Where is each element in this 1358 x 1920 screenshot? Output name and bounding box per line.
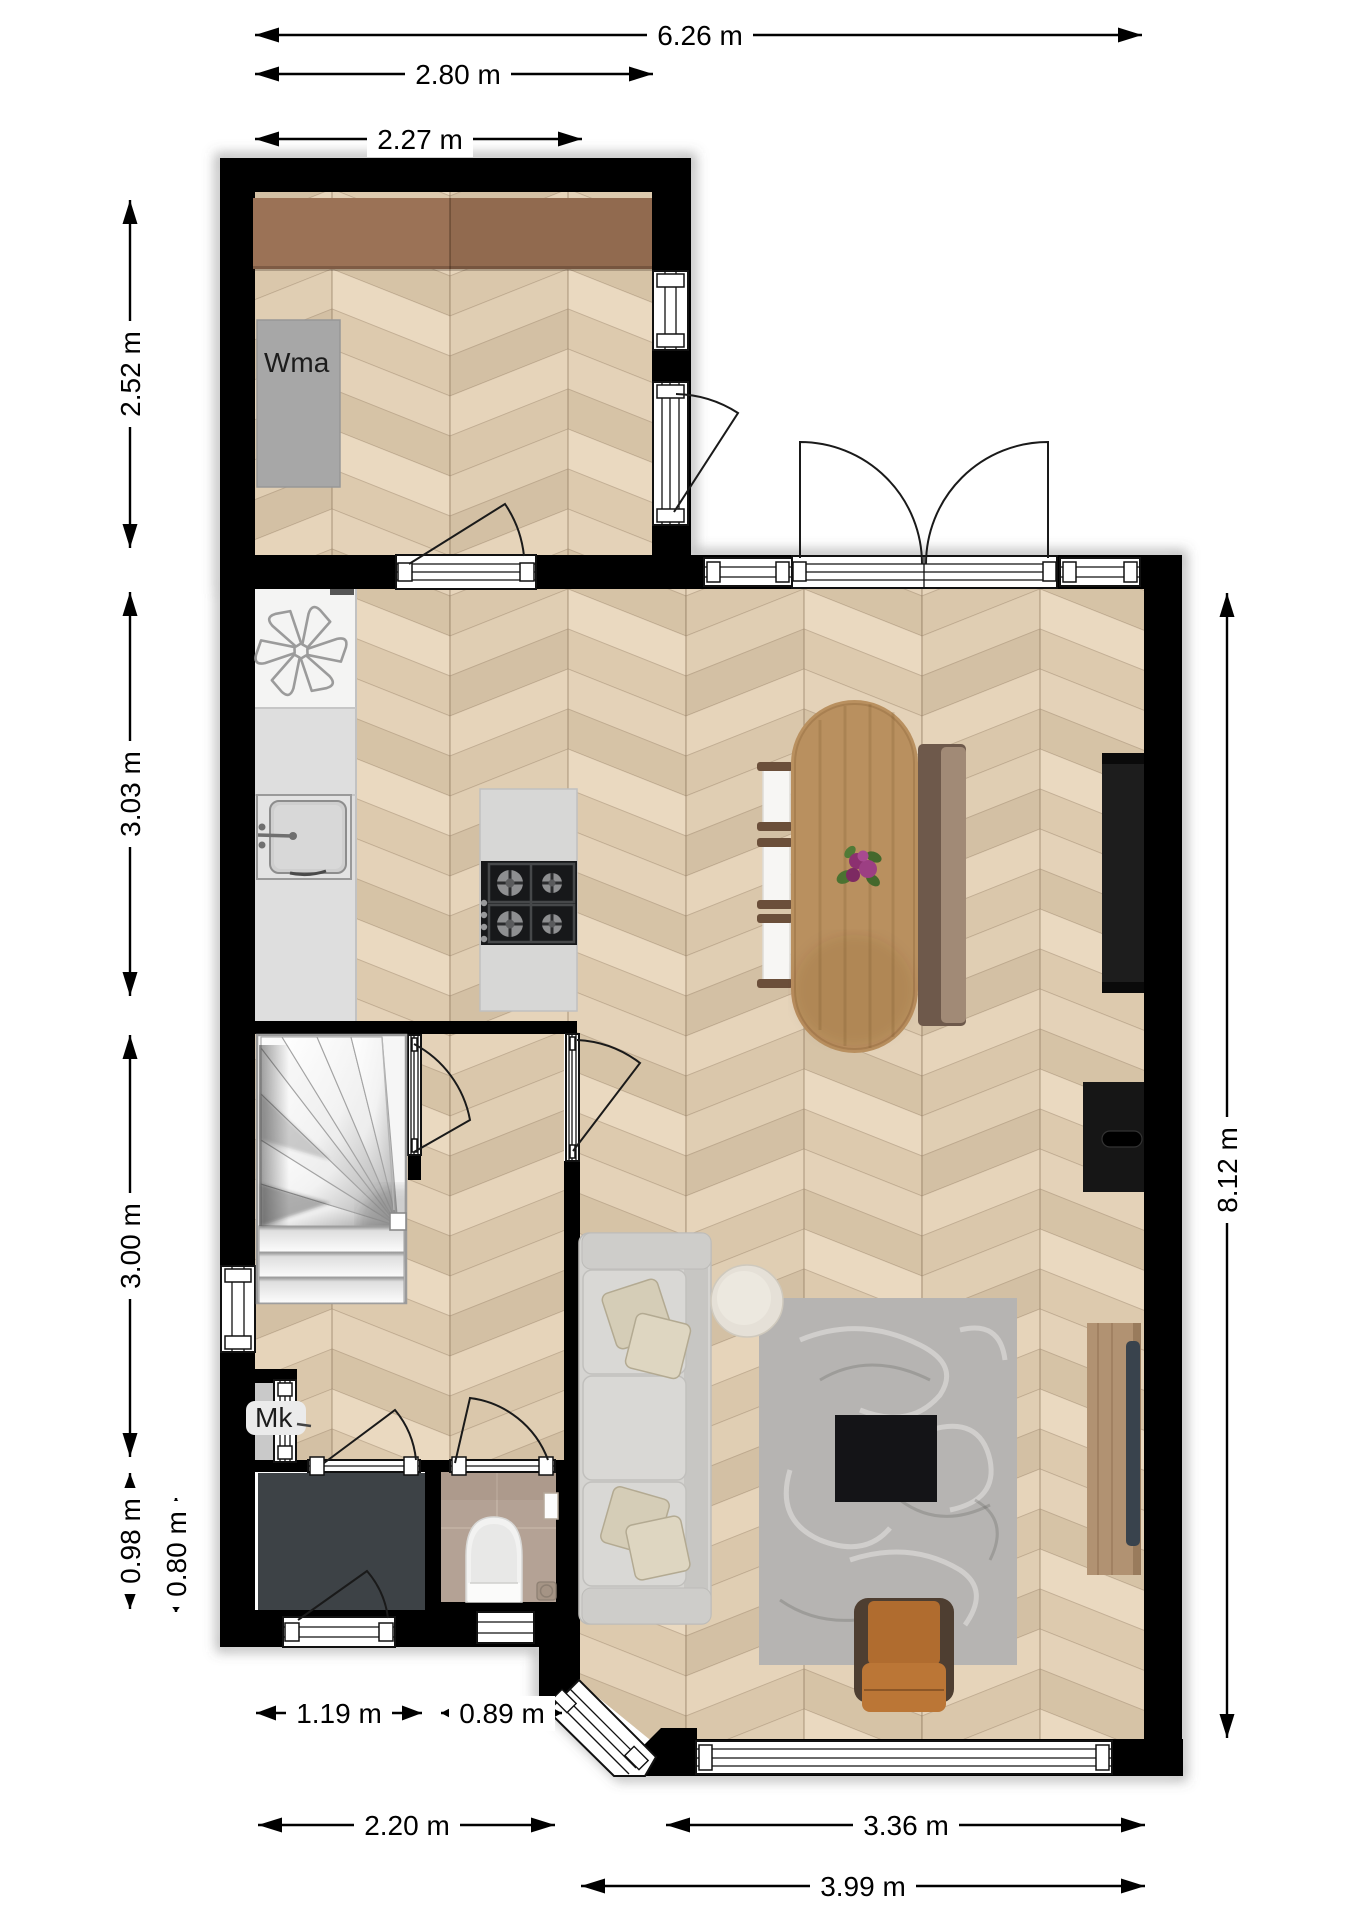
svg-text:Wma: Wma: [264, 347, 330, 378]
svg-text:0.89 m: 0.89 m: [459, 1698, 545, 1729]
svg-text:1.19 m: 1.19 m: [296, 1698, 382, 1729]
svg-text:3.03 m: 3.03 m: [115, 751, 146, 837]
svg-text:Mk: Mk: [255, 1402, 293, 1433]
svg-text:2.27 m: 2.27 m: [377, 124, 463, 155]
svg-text:6.26 m: 6.26 m: [657, 20, 743, 51]
svg-text:3.99 m: 3.99 m: [820, 1871, 906, 1902]
svg-text:2.20 m: 2.20 m: [364, 1810, 450, 1841]
svg-text:2.52 m: 2.52 m: [115, 331, 146, 417]
svg-text:0.80 m: 0.80 m: [161, 1511, 192, 1597]
svg-text:8.12 m: 8.12 m: [1212, 1127, 1243, 1213]
svg-text:2.80 m: 2.80 m: [415, 59, 501, 90]
svg-text:3.36 m: 3.36 m: [863, 1810, 949, 1841]
svg-text:0.98 m: 0.98 m: [115, 1498, 146, 1584]
svg-text:3.00 m: 3.00 m: [115, 1203, 146, 1289]
